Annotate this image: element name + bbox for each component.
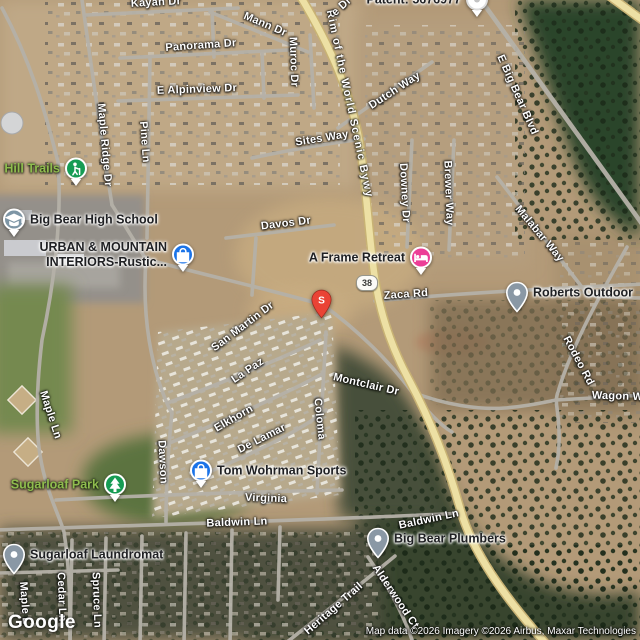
poi-label-a-frame-retreat[interactable]: A Frame Retreat bbox=[309, 251, 405, 266]
map-attribution: Map data ©2026 Imagery ©2026 Airbus, Max… bbox=[366, 626, 636, 637]
street-label: Dawson bbox=[155, 440, 168, 484]
street-label: Wagon Wh bbox=[592, 390, 640, 403]
shopping-icon[interactable] bbox=[188, 459, 214, 494]
google-logo[interactable]: Google bbox=[8, 612, 76, 634]
place-white-icon[interactable] bbox=[464, 0, 490, 23]
street-label: Brewer Way bbox=[441, 160, 454, 225]
place-icon[interactable] bbox=[505, 281, 529, 318]
hiking-icon[interactable] bbox=[63, 157, 89, 192]
lodging-icon[interactable] bbox=[408, 246, 434, 281]
poi-label-urban-mountain-interiors-rustic[interactable]: URBAN & MOUNTAININTERIORS-Rustic... bbox=[39, 240, 167, 270]
poi-label-sugarloaf-park[interactable]: Sugarloaf Park bbox=[11, 478, 99, 493]
pin-letter: S bbox=[318, 296, 325, 307]
poi-label-big-bear-plumbers[interactable]: Big Bear Plumbers bbox=[394, 532, 506, 547]
street-label: Downey Dr bbox=[397, 163, 411, 223]
place-icon[interactable] bbox=[366, 527, 390, 564]
street-label: Virginia bbox=[245, 493, 288, 505]
satellite-map[interactable]: Kayan DrMann DrPanorama DrE Alpinview Dr… bbox=[0, 0, 640, 640]
park-icon[interactable] bbox=[102, 473, 128, 508]
poi-label-patent-5676977[interactable]: Patent: 5676977 bbox=[366, 0, 461, 8]
poi-label-sugarloaf-laundromat[interactable]: Sugarloaf Laundromat bbox=[30, 548, 163, 563]
search-result-pin[interactable]: S bbox=[311, 289, 332, 324]
shopping-icon[interactable] bbox=[170, 243, 196, 278]
route-38-shield: 38 bbox=[356, 275, 378, 291]
school-icon[interactable] bbox=[1, 208, 27, 243]
poi-label-tom-wohrman-sports[interactable]: Tom Wohrman Sports bbox=[217, 464, 346, 479]
street-label: Baldwin Ln bbox=[206, 516, 268, 529]
poi-label-big-bear-high-school[interactable]: Big Bear High School bbox=[30, 213, 158, 228]
route-38-number: 38 bbox=[362, 278, 372, 288]
street-label: Muroc Dr bbox=[287, 37, 300, 88]
street-label: Spruce Ln bbox=[90, 572, 103, 628]
place-icon[interactable] bbox=[2, 543, 26, 580]
poi-label-roberts-outdoor[interactable]: Roberts Outdoor bbox=[533, 286, 633, 301]
street-label: Pine Ln bbox=[137, 121, 151, 163]
poi-label-hill-trails[interactable]: Hill Trails bbox=[4, 162, 60, 177]
